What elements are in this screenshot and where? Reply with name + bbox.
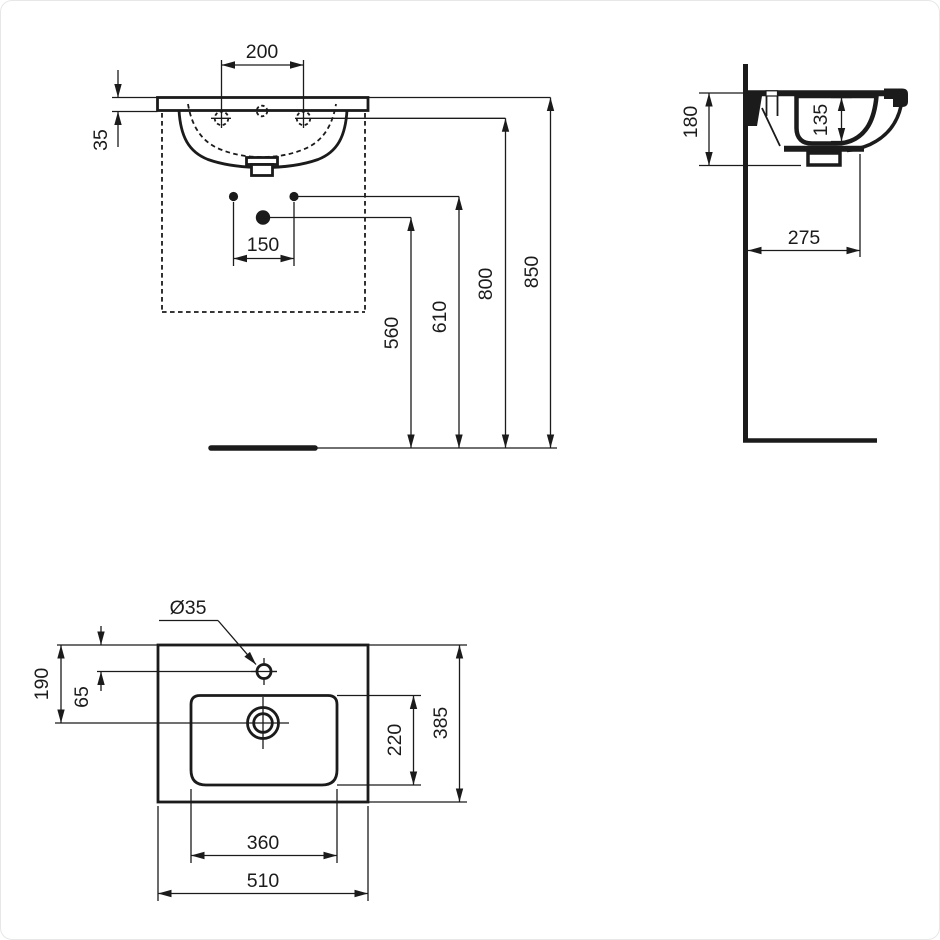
dim-label-150: 150 <box>247 234 280 256</box>
dim-label-220: 220 <box>384 724 406 757</box>
dim-label-800: 800 <box>475 268 497 301</box>
dim-fixing-height: 610 <box>429 197 459 449</box>
dim-label-190: 190 <box>31 668 53 701</box>
dim-label-dia35: Ø35 <box>170 597 207 619</box>
tap-hole <box>251 658 277 685</box>
dim-label-35: 35 <box>90 129 112 151</box>
dim-outlet-height: 560 <box>381 218 411 449</box>
dim-label-560: 560 <box>381 317 403 350</box>
dim-label-360: 360 <box>247 832 280 854</box>
dim-label-510: 510 <box>247 870 280 892</box>
dim-overall-depth: 385 <box>430 645 460 802</box>
dim-bowl-depth: 220 <box>384 696 414 786</box>
front-view: 200 35 150 560 610 800 850 <box>90 41 557 448</box>
dim-rear-to-outlet: 190 <box>31 645 61 723</box>
bowl-inner-outline-dashed <box>188 104 336 157</box>
dim-tapline-height: 800 <box>475 118 506 448</box>
dim-bowl-width: 360 <box>191 832 337 856</box>
dim-label-200: 200 <box>246 41 279 63</box>
dim-rim-thickness: 35 <box>90 70 118 151</box>
dim-wall-to-front: 275 <box>748 154 860 257</box>
dim-rim-height: 850 <box>521 98 551 449</box>
dim-label-610: 610 <box>429 301 451 334</box>
dim-body-height: 180 <box>680 93 801 166</box>
dim-label-135: 135 <box>810 104 832 137</box>
dim-label-385: 385 <box>430 707 452 740</box>
dim-label-850: 850 <box>521 256 543 289</box>
waste-trap <box>247 158 278 176</box>
dim-label-275: 275 <box>788 227 821 249</box>
fixing-hole-left <box>229 192 238 201</box>
dim-label-180: 180 <box>680 106 702 139</box>
leader-tap-hole-dia: Ø35 <box>159 597 256 665</box>
dim-tap-spacing: 200 <box>222 41 304 65</box>
technical-drawing-washbasin: 200 35 150 560 610 800 850 <box>0 0 940 940</box>
side-view: 180 135 275 <box>680 64 908 441</box>
top-view: Ø35 190 65 220 385 <box>31 597 467 901</box>
dim-label-65: 65 <box>71 686 93 708</box>
dim-rear-to-tap: 65 <box>71 626 101 708</box>
dim-overall-width: 510 <box>158 870 368 894</box>
